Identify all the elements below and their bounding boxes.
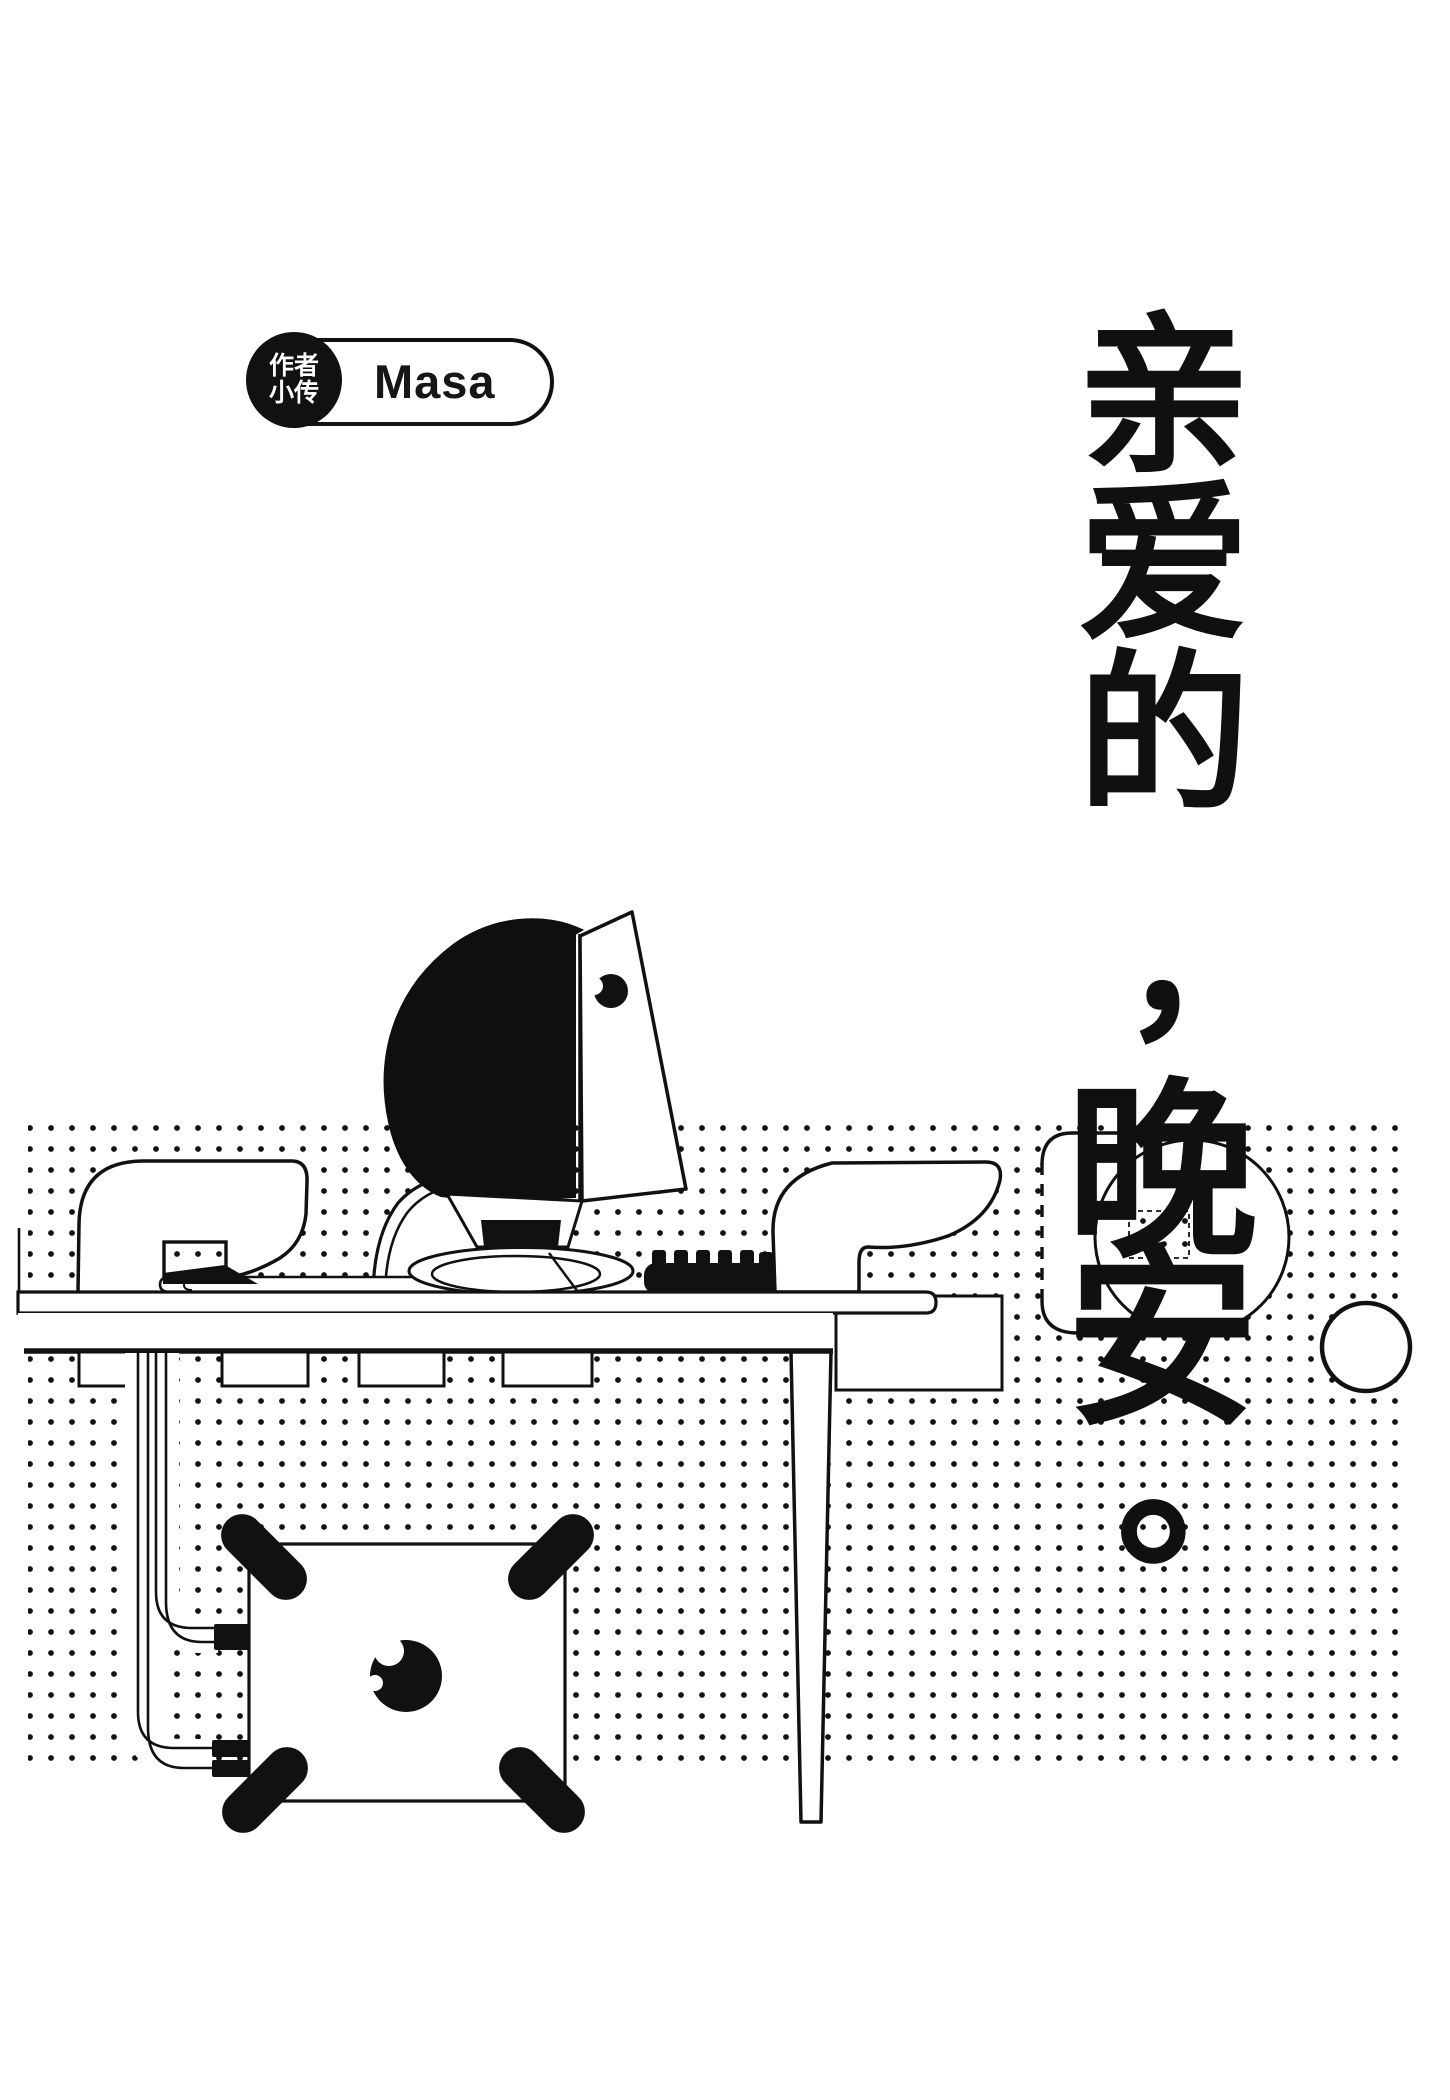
desk-apron [18, 1313, 833, 1351]
author-badge: Masa 作者 小传 [246, 332, 576, 436]
book-page: Masa 作者 小传 亲 爱 的 ， 晚 安 。 [0, 0, 1450, 2100]
small-circle-icon [1322, 1303, 1410, 1391]
subwoofer-icon [212, 1505, 603, 1841]
verse-period: 。 [1116, 1387, 1308, 1579]
verse-comma: ， [1120, 878, 1292, 1050]
modem-box-icon [164, 1242, 226, 1277]
cable-plug [212, 1740, 252, 1757]
power-dot-bite [585, 977, 603, 995]
badge-tag-line2: 小传 [246, 380, 342, 407]
badge-tag-line1: 作者 [246, 353, 342, 380]
cable-plug [212, 1760, 252, 1777]
screen-side-panel [580, 912, 686, 1201]
verse-char-de: 的 [1064, 649, 1264, 821]
verse-char-ai: 爱 [1064, 479, 1264, 651]
author-name: Masa [374, 354, 496, 409]
cable-plug [214, 1624, 252, 1650]
desk-top [18, 1292, 936, 1313]
badge-tag: 作者 小传 [246, 332, 342, 428]
verse-char-qin: 亲 [1064, 311, 1264, 483]
crt-dome [385, 919, 582, 1199]
